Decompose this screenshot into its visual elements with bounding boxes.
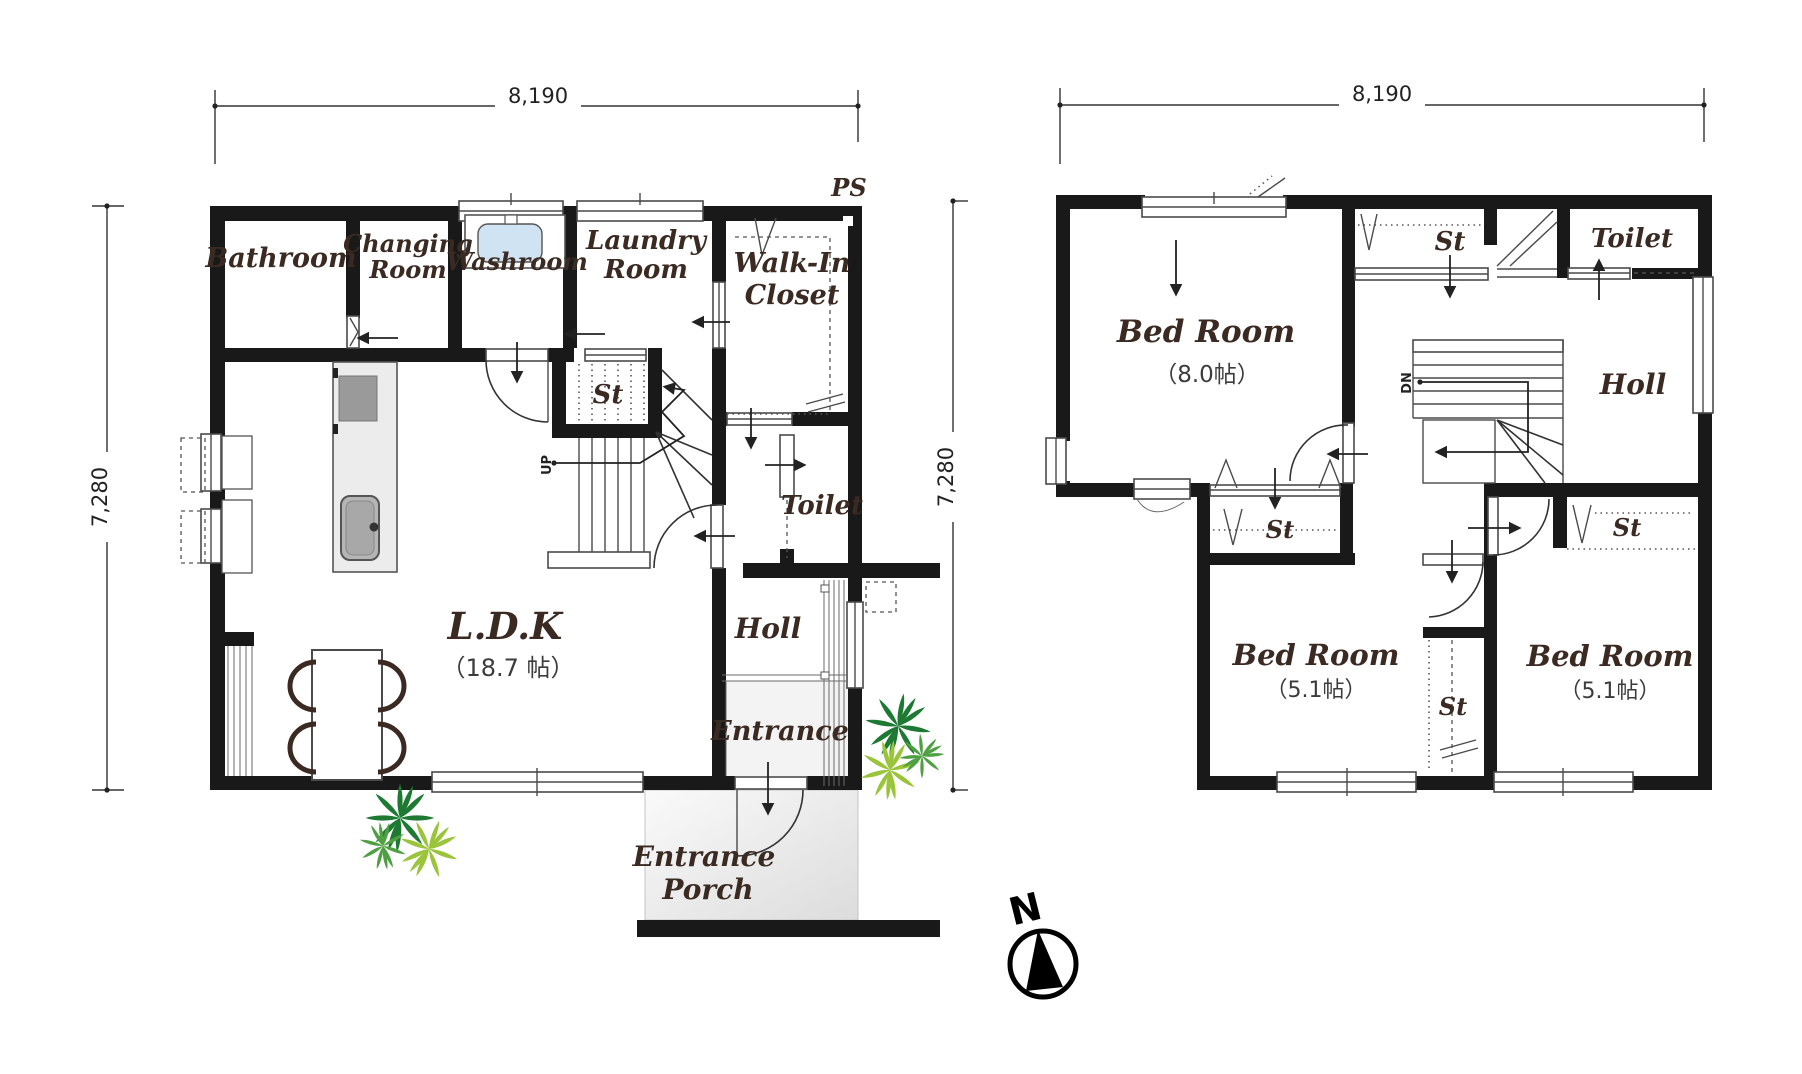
room-size-ldk: （18.7 帖） [441,654,574,682]
room-size-bedroom1: （8.0帖） [1154,362,1260,388]
second-floor-plan: DN [932,82,1713,796]
bedroom2-door-leaf [1423,554,1483,565]
window-ldk-left-2 [201,509,221,563]
stove-icon [339,376,377,421]
room-label-ldk: L.D.K [447,604,565,648]
ps-label: PS [830,173,866,202]
toilet-door-1f [780,435,794,497]
stairs-2f: DN [1400,211,1563,483]
room-label-wic-2: Closet [745,280,840,311]
room-label-st-1f: St [593,380,624,410]
floor-plan-canvas: UP [0,0,1802,1074]
dim-width-1f: 8,190 [508,84,568,108]
room-label-bedroom1: Bed Room [1116,314,1295,350]
porch-edge [637,920,940,937]
room-label-st-top: St [1435,227,1466,257]
room-label-washroom: Washroom [446,247,587,276]
compass: N [1005,884,1076,997]
window-entrance-side [847,602,863,688]
room-size-bedroom3: （5.1帖） [1560,679,1661,704]
room-label-entrance: Entrance [710,716,849,747]
room-label-st-right: St [1613,513,1641,542]
first-floor-plan: UP [86,84,940,937]
room-size-bedroom2: （5.1帖） [1266,678,1367,703]
floor-plan-svg: UP [0,0,1802,1074]
window-bedroom1-top [1142,192,1286,217]
room-label-bedroom2: Bed Room [1232,638,1400,672]
ps-notch [843,216,853,226]
room-label-st-closet: St [1266,515,1294,544]
bedroom1-door-leaf [1343,423,1354,483]
stair-dn-arrow [1422,382,1528,452]
stair-winder-1f [656,370,712,518]
dim-height-1f: 7,280 [88,467,112,527]
window-ldk-bottom [432,768,643,796]
stair-bottom-step [548,552,650,568]
dim-height-2f: 7,280 [934,447,958,507]
room-label-holl-1f: Holl [734,612,801,645]
window-bedroom1-bottom [1134,479,1190,499]
window-bedroom2-bottom [1277,768,1416,796]
dining-table [312,650,382,780]
meter-box [866,582,896,612]
stair-dn-label: DN [1400,372,1415,394]
room-label-bedroom3: Bed Room [1526,639,1694,673]
cabinet-2 [222,500,252,573]
room-label-changing-2: Room [368,255,446,284]
window-ldk-left-1 [201,434,221,491]
room-label-bathroom: Bathroom [204,243,356,274]
stair-up-label: UP [540,455,555,475]
faucet-icon [370,523,379,532]
room-label-st-mid: St [1439,692,1467,721]
dim-width-2f: 8,190 [1352,82,1412,106]
room-label-toilet-2f: Toilet [1591,224,1673,254]
room-label-laundry-1: Laundry [585,226,708,256]
window-holl-right [1693,277,1713,413]
room-label-laundry-2: Room [603,255,688,285]
cabinet-1 [222,436,252,489]
room-label-toilet-1f: Toilet [781,491,863,521]
kitchen-counter [333,362,397,572]
north-label: N [1005,884,1047,934]
room-label-holl-2f: Holl [1599,368,1666,401]
room-label-porch-1: Entrance [632,840,776,873]
room-label-porch-2: Porch [661,873,753,906]
window-bedroom1-left [1046,438,1066,484]
window-laundry [577,193,703,221]
window-bedroom3-bottom [1494,768,1633,796]
dining-set [290,650,404,780]
louver-strip [224,632,254,776]
room-label-wic-1: Walk-In [734,248,851,279]
north-arrow-icon [1026,930,1063,991]
bedroom3-door-leaf [1488,497,1498,555]
front-door-opening [735,777,807,789]
door-arrows-2f [1176,240,1599,580]
stair-top-step [1413,340,1563,352]
